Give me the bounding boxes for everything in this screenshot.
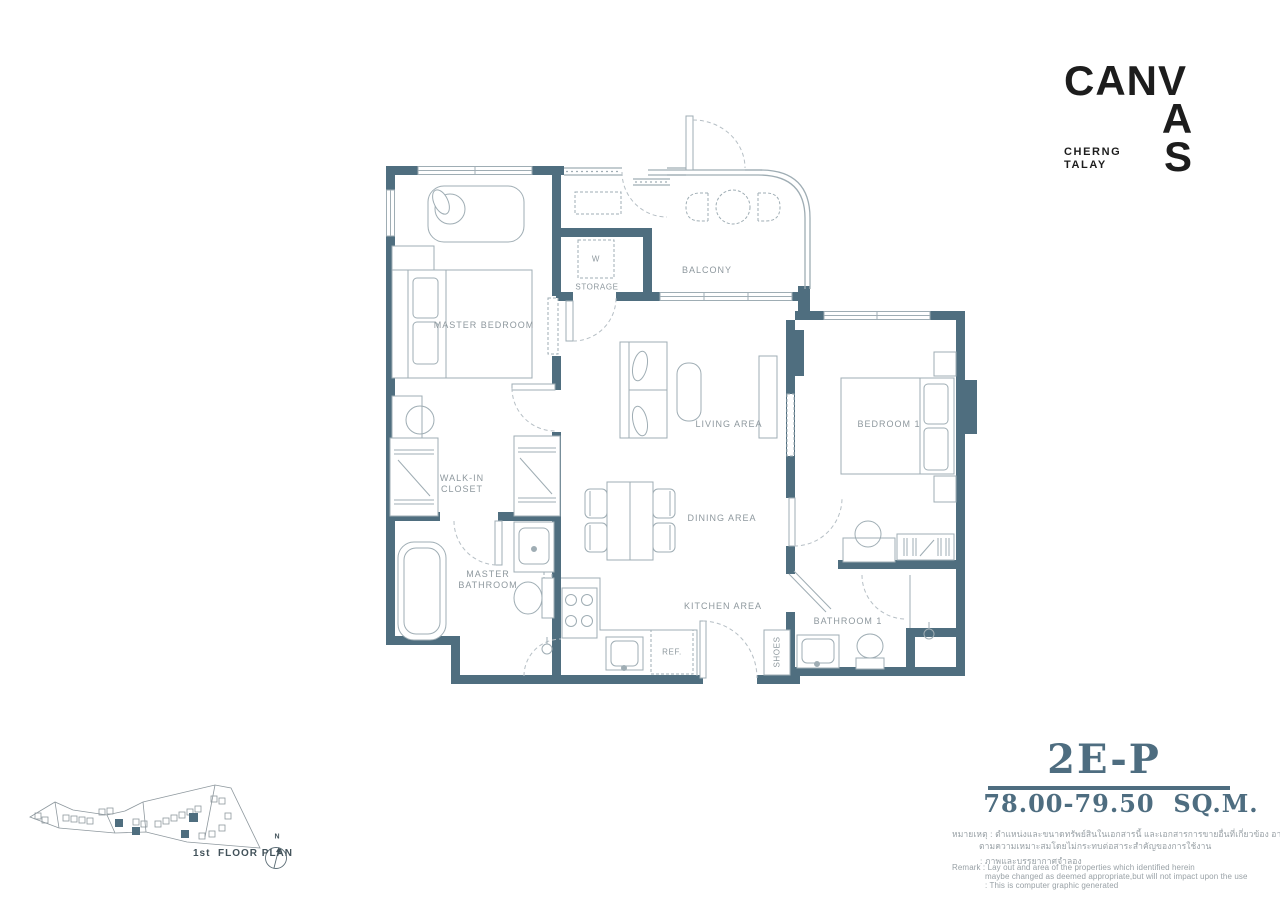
furniture-bedroom1 (841, 352, 956, 562)
label-ref: REF. (662, 648, 682, 657)
remark-line-2: ตามความเหมาะสมโดยไม่กระทบต่อสาระสำคัญของ… (979, 839, 1211, 853)
unit-code: 2E-P (1047, 740, 1161, 780)
label-balcony: BALCONY (682, 265, 732, 275)
site-plan-caption: 1st FLOOR PLAN (193, 848, 293, 859)
furniture-master-bedroom (392, 186, 532, 440)
label-bedroom1: BEDROOM 1 (857, 419, 920, 429)
floor-plan-page: MASTER BEDROOM BALCONY LIVING AREA DININ… (0, 0, 1280, 905)
remark-line-6: : This is computer graphic generated (985, 881, 1118, 890)
label-walk-in: WALK-IN (440, 473, 484, 483)
logo-subtitle-cherng: CHERNG (1064, 147, 1121, 158)
furniture-dining (585, 482, 675, 560)
label-storage: STORAGE (575, 283, 618, 292)
compass-north-label: N (274, 834, 279, 841)
site-plan-drawing (15, 775, 315, 895)
label-master-bath-2: BATHROOM (458, 580, 517, 590)
wall-notch (915, 637, 956, 667)
unit-area: 78.00-79.50 SQ.M. (983, 792, 1258, 816)
label-bathroom1: BATHROOM 1 (814, 616, 883, 626)
label-master-bedroom: MASTER BEDROOM (434, 320, 535, 330)
label-kitchen-area: KITCHEN AREA (684, 601, 762, 611)
label-living-area: LIVING AREA (695, 419, 762, 429)
label-master-bath-1: MASTER (466, 569, 510, 579)
label-shoes: SHOES (773, 636, 782, 667)
remark-line-5: maybe changed as deemed appropriate,but … (985, 872, 1248, 881)
label-closet: CLOSET (441, 484, 483, 494)
label-dining-area: DINING AREA (687, 513, 756, 523)
logo-subtitle-talay: TALAY (1064, 160, 1107, 171)
remark-line-4: Remark : Lay out and area of the propert… (952, 863, 1195, 872)
label-washer: W (592, 255, 600, 264)
logo-letter-s: S (1164, 136, 1192, 178)
